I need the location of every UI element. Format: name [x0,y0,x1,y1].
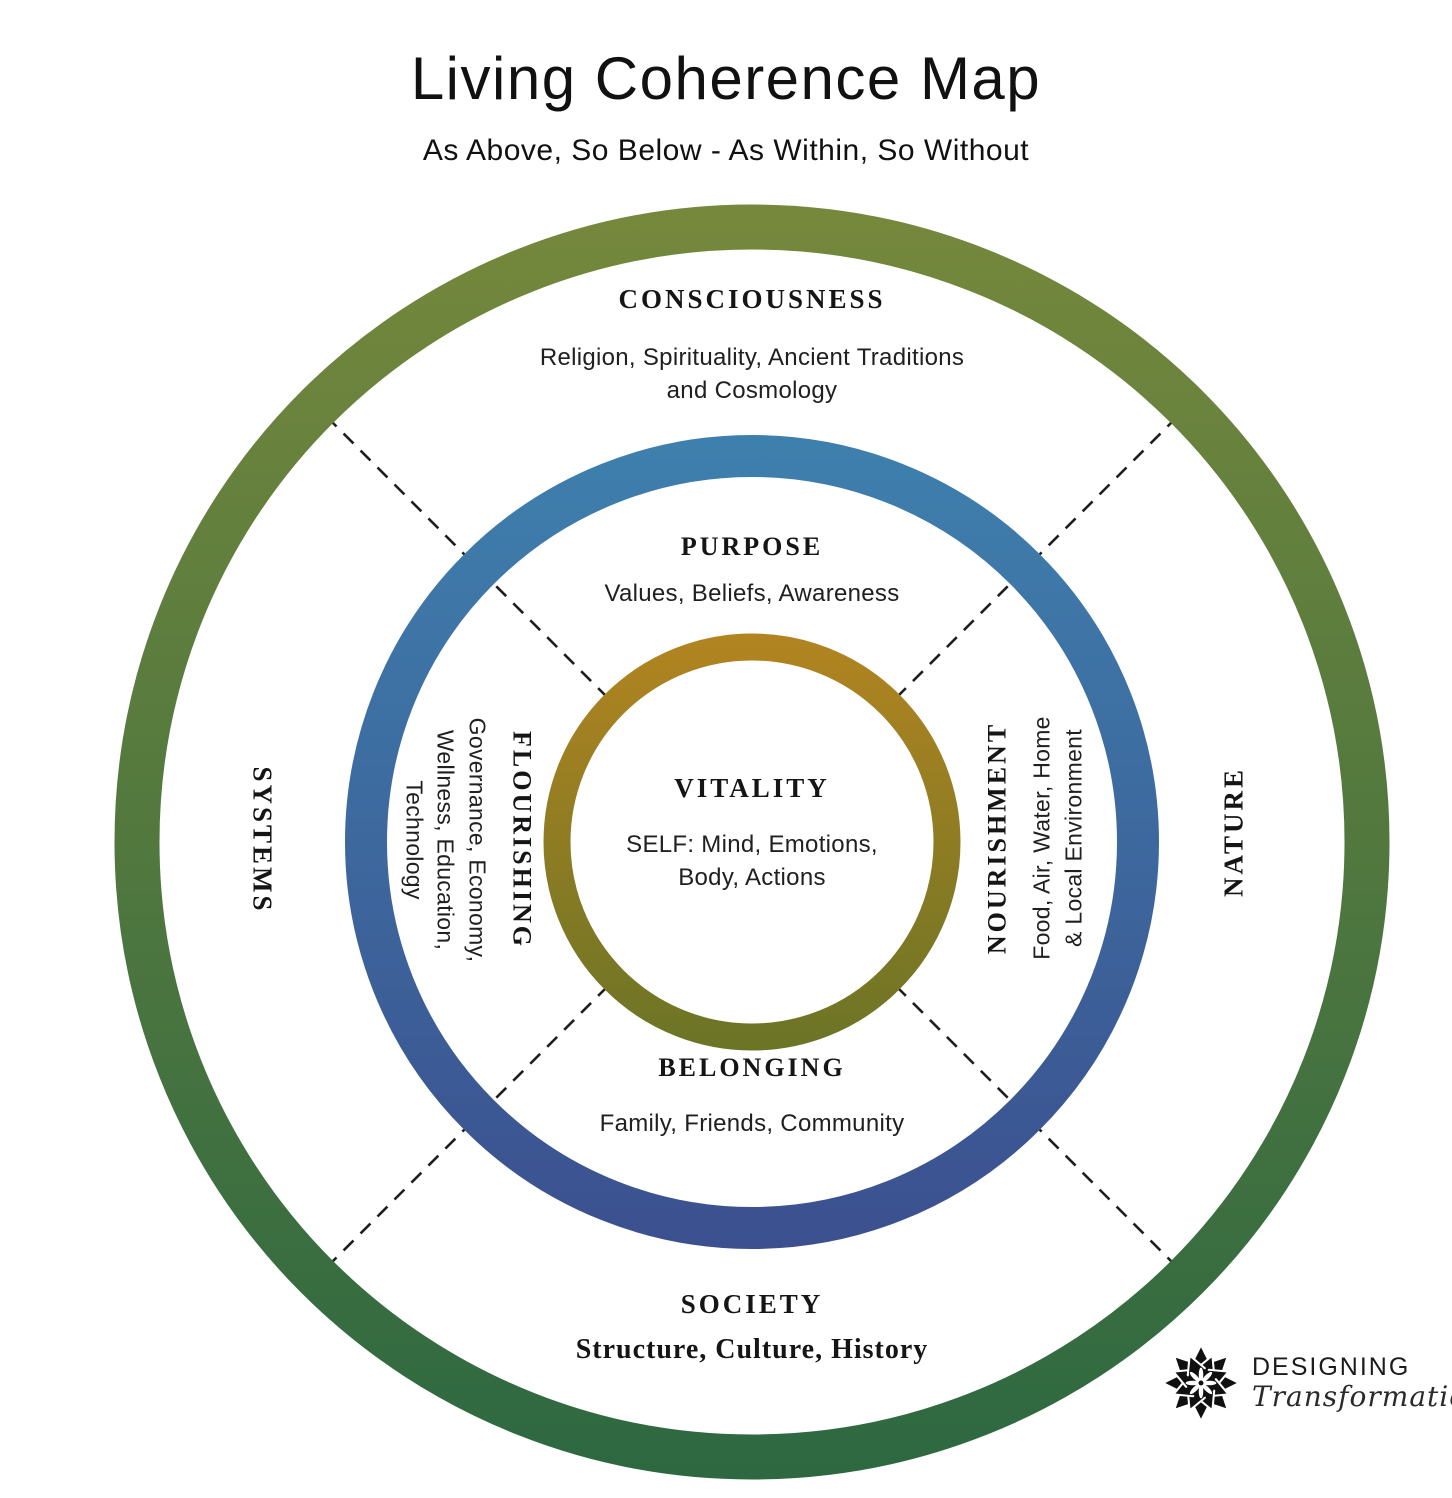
consciousness-detail-line1: Religion, Spirituality, Ancient Traditio… [540,341,964,374]
nourishment-detail-line2: & Local Environment [1058,716,1090,960]
flourishing-block: FLOURISHING Governance, Economy, Wellnes… [397,718,536,963]
society-label: SOCIETY [681,1289,824,1320]
nourishment-label: NOURISHMENT [982,716,1012,960]
logo-name-script: Transformation [1252,1380,1452,1413]
flourishing-detail-line3: Technology [397,718,429,963]
vitality-detail: SELF: Mind, Emotions, Body, Actions [626,828,878,894]
nourishment-block: NOURISHMENT Food, Air, Water, Home & Loc… [982,716,1089,960]
purpose-detail: Values, Beliefs, Awareness [604,577,899,610]
consciousness-detail: Religion, Spirituality, Ancient Traditio… [540,341,964,407]
nature-label: NATURE [1219,767,1250,897]
vitality-detail-line1: SELF: Mind, Emotions, [626,828,878,861]
systems-label: SYSTEMS [247,766,278,913]
consciousness-label: CONSCIOUSNESS [618,284,885,315]
purpose-label: PURPOSE [681,532,823,562]
flower-logo-icon [1160,1342,1242,1424]
flourishing-detail: Governance, Economy, Wellness, Education… [397,718,492,963]
flourishing-label: FLOURISHING [507,718,537,963]
flourishing-detail-line2: Wellness, Education, [429,718,461,963]
consciousness-detail-line2: and Cosmology [540,374,964,407]
flourishing-detail-line1: Governance, Economy, [461,718,493,963]
logo-name-caps: DESIGNING [1252,1353,1410,1382]
belonging-label: BELONGING [658,1053,845,1083]
living-coherence-map-page: Living Coherence Map As Above, So Below … [0,0,1452,1498]
designing-transformation-logo: DESIGNING Transformation [1160,1342,1452,1424]
logo-text-block: DESIGNING Transformation [1252,1353,1452,1413]
vitality-detail-line2: Body, Actions [626,861,878,894]
coherence-diagram [0,0,1452,1498]
society-detail: Structure, Culture, History [576,1334,929,1366]
vitality-label: VITALITY [674,773,830,804]
belonging-detail: Family, Friends, Community [600,1107,905,1140]
nourishment-detail-line1: Food, Air, Water, Home [1026,716,1058,960]
nourishment-detail: Food, Air, Water, Home & Local Environme… [1026,716,1089,960]
